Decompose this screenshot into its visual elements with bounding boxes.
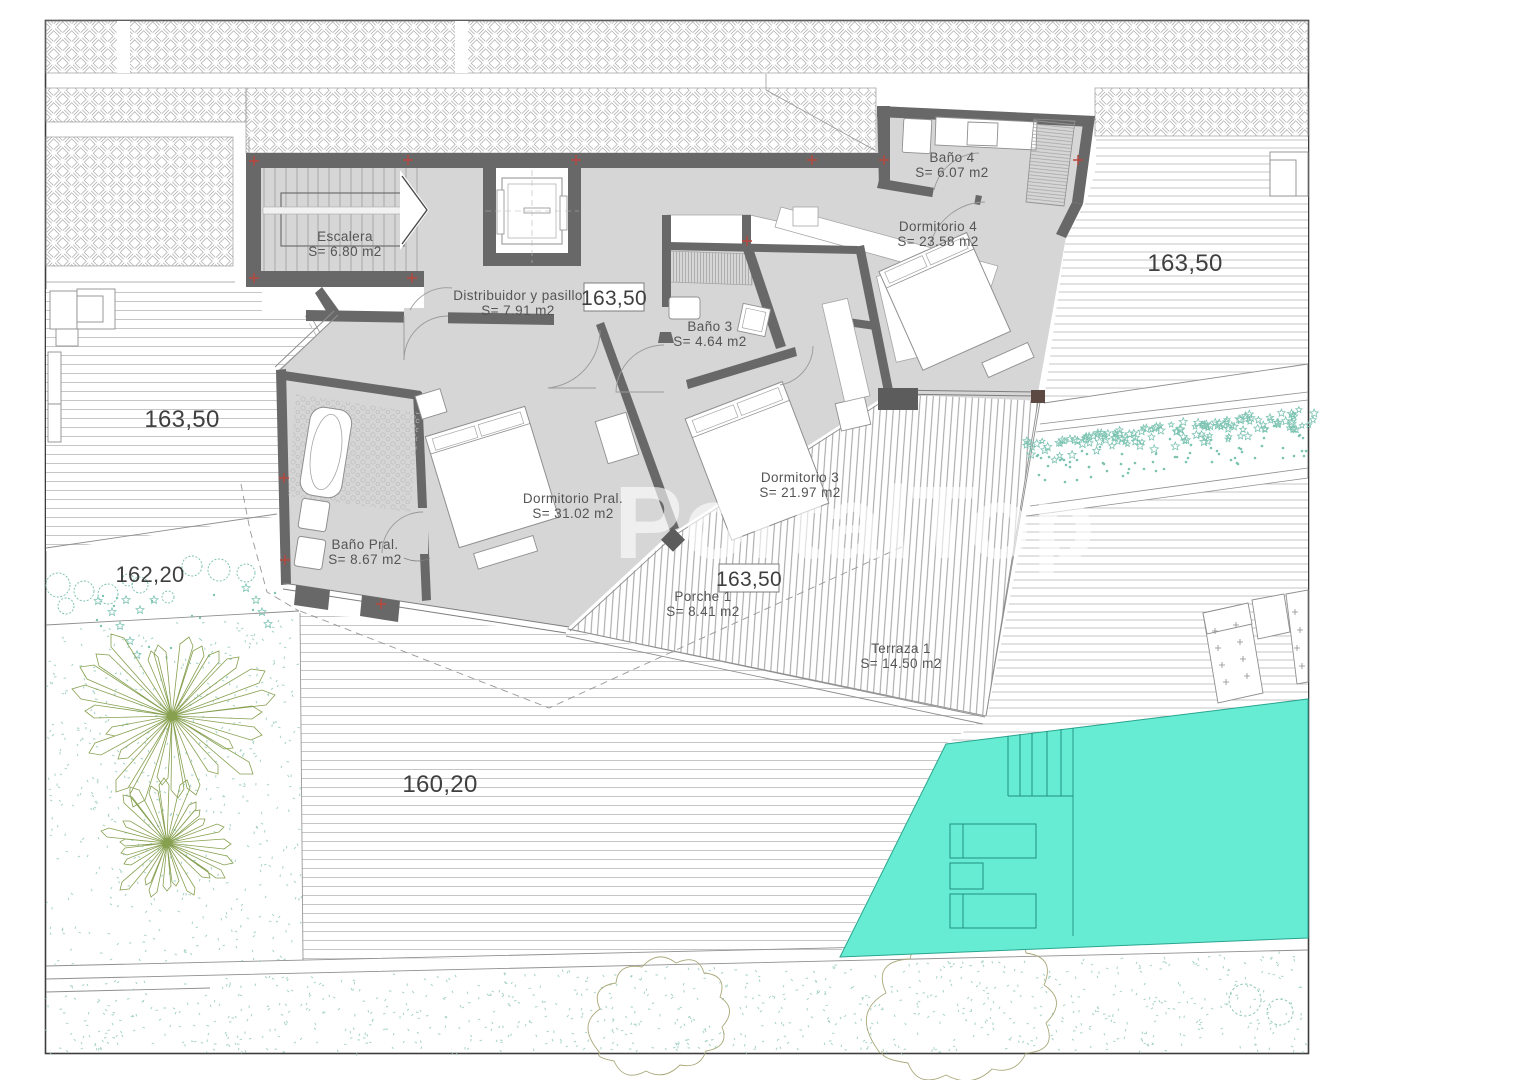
svg-text:S= 4.64 m2: S= 4.64 m2 [673, 334, 746, 349]
svg-text:S= 8.67 m2: S= 8.67 m2 [328, 552, 401, 567]
svg-text:PortalTop: PortalTop [614, 465, 1096, 580]
svg-text:S= 21.97 m2: S= 21.97 m2 [759, 485, 840, 500]
svg-text:163,50: 163,50 [1147, 250, 1222, 277]
svg-text:Dormitorio 4: Dormitorio 4 [899, 219, 977, 234]
svg-text:163,50: 163,50 [716, 568, 782, 591]
svg-text:S= 14.50 m2: S= 14.50 m2 [860, 656, 941, 671]
svg-text:Escalera: Escalera [317, 229, 373, 244]
svg-text:S= 6.07 m2: S= 6.07 m2 [915, 165, 988, 180]
svg-text:S= 31.02 m2: S= 31.02 m2 [532, 506, 613, 521]
svg-text:163,50: 163,50 [581, 287, 647, 310]
svg-text:S= 7.91 m2: S= 7.91 m2 [481, 303, 554, 318]
svg-text:Dormitorio 3: Dormitorio 3 [761, 470, 839, 485]
svg-text:S= 23.58 m2: S= 23.58 m2 [897, 234, 978, 249]
svg-text:Baño 3: Baño 3 [687, 319, 732, 334]
svg-text:Terraza 1: Terraza 1 [871, 641, 931, 656]
svg-text:160,20: 160,20 [402, 771, 477, 798]
svg-text:S= 6.80 m2: S= 6.80 m2 [308, 244, 381, 259]
svg-text:S= 8.41 m2: S= 8.41 m2 [666, 604, 739, 619]
svg-text:Porche 1: Porche 1 [674, 589, 731, 604]
svg-text:Distribuidor y pasillo: Distribuidor y pasillo [453, 288, 583, 303]
svg-text:Baño Pral.: Baño Pral. [331, 537, 398, 552]
svg-text:Baño 4: Baño 4 [929, 150, 974, 165]
svg-text:Dormitorio Pral.: Dormitorio Pral. [523, 491, 623, 506]
svg-text:163,50: 163,50 [144, 406, 219, 433]
svg-text:162,20: 162,20 [115, 562, 184, 587]
